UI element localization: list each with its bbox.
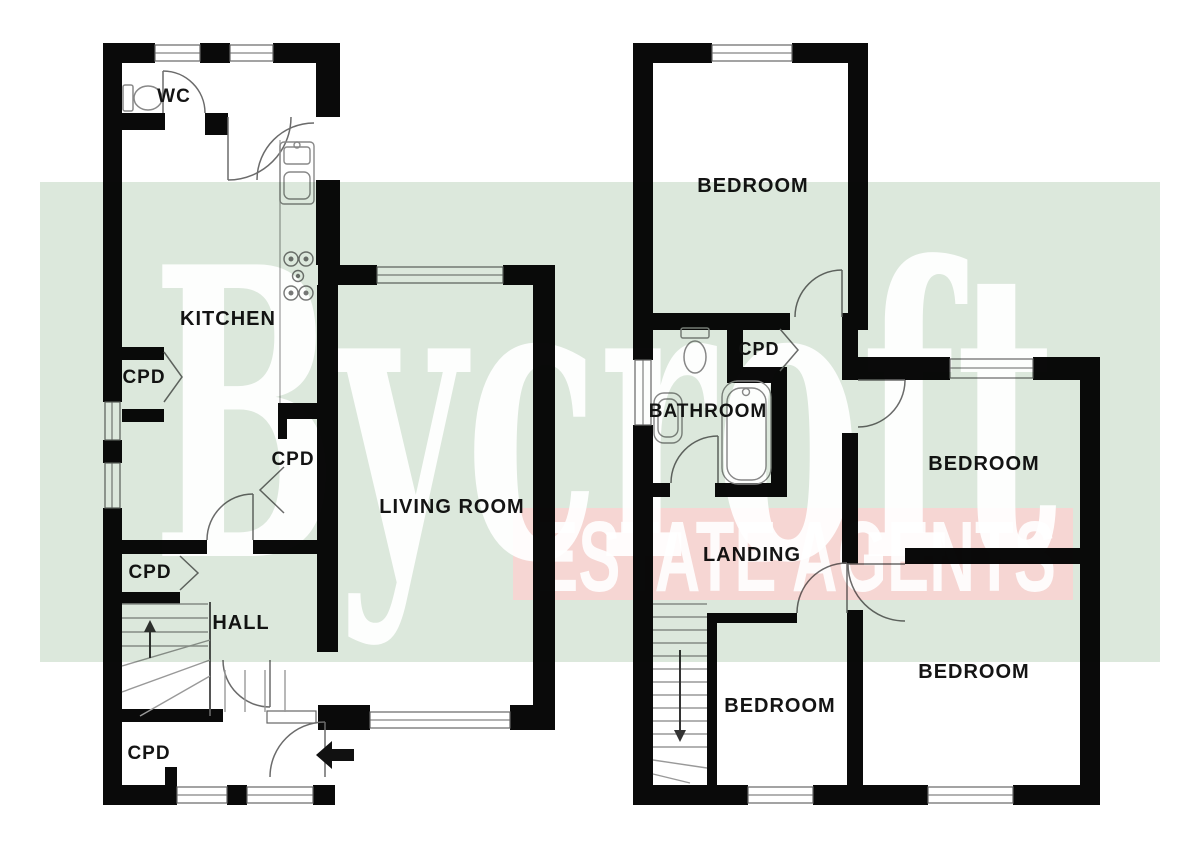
estate-agent-watermark: Bycroft ESTATE AGENTS (0, 0, 1200, 848)
floorplan-image: WC KITCHEN CPD CPD LIVING ROOM CPD HALL … (0, 0, 1200, 848)
watermark-tagline-text: ESTATE AGENTS (536, 501, 1056, 613)
